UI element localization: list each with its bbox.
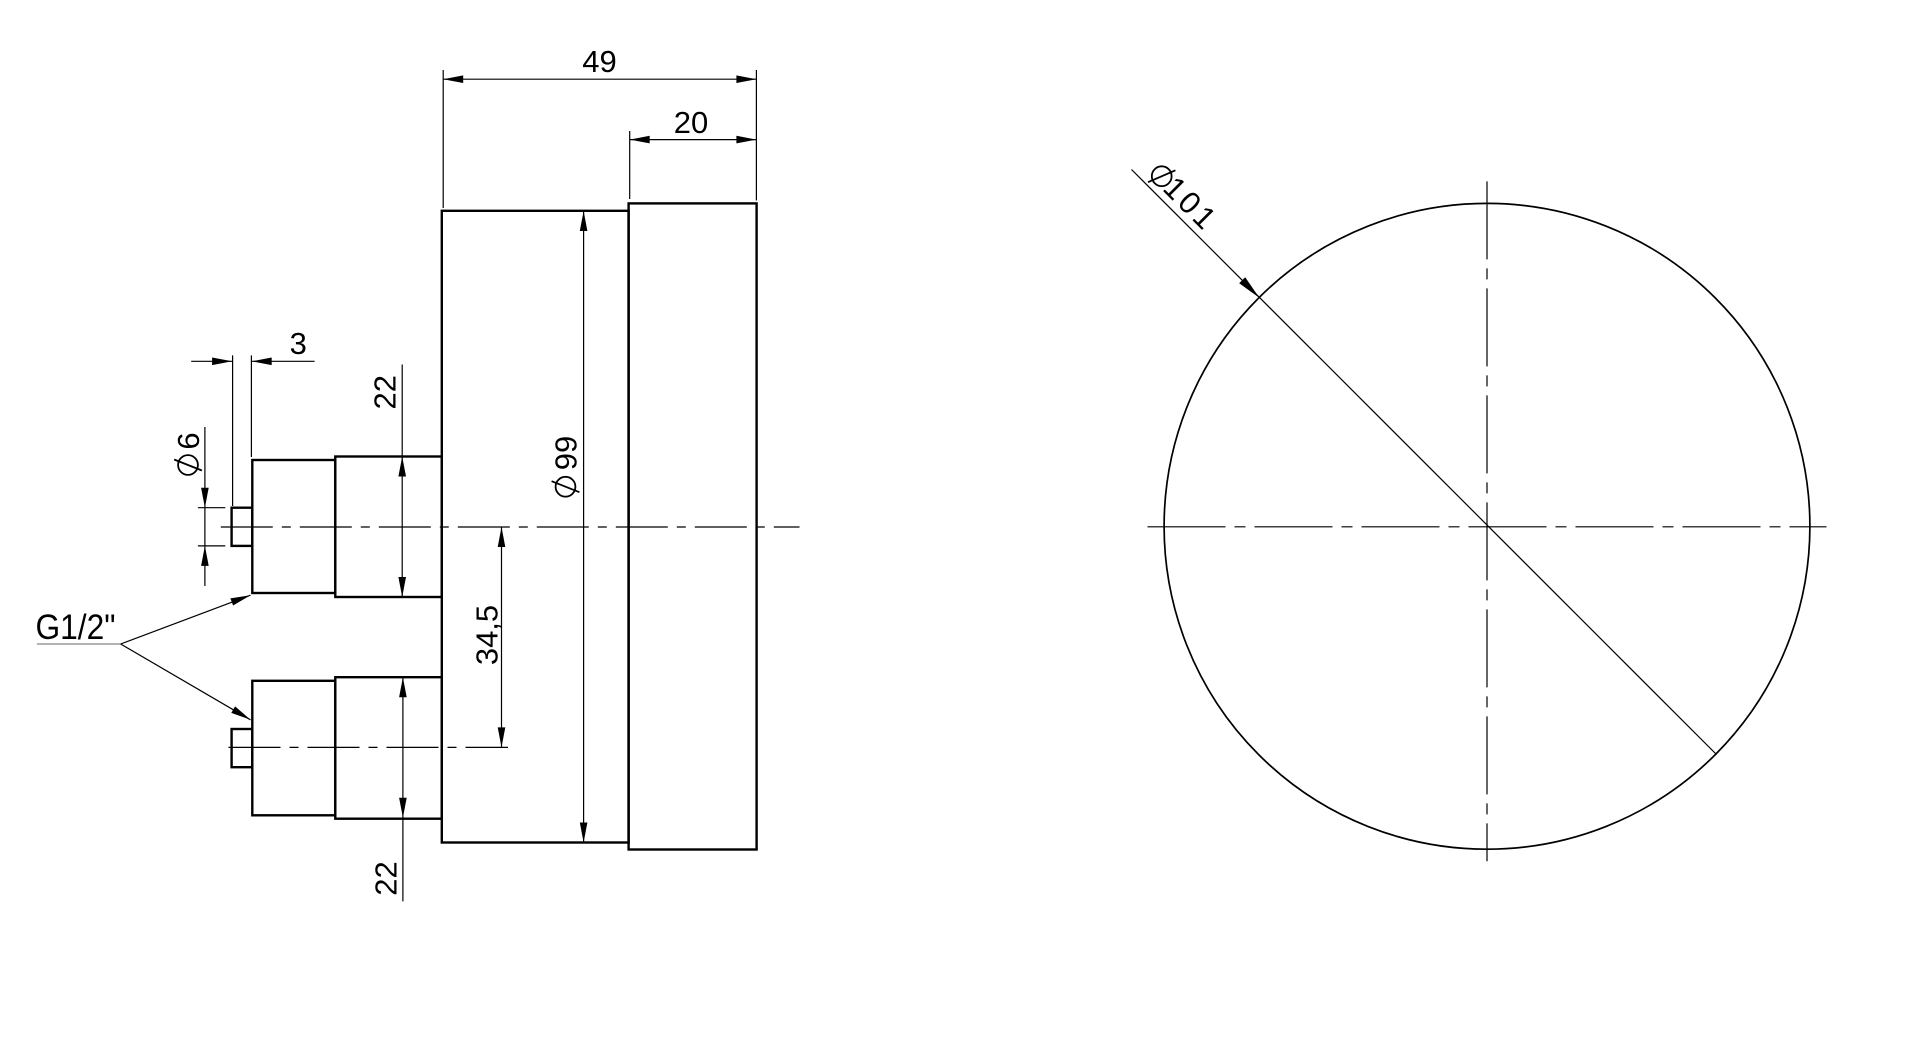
svg-text:3: 3 bbox=[290, 326, 307, 361]
svg-text:99: 99 bbox=[548, 436, 583, 470]
svg-text:6: 6 bbox=[171, 432, 206, 449]
svg-text:G1/2": G1/2" bbox=[36, 608, 116, 647]
svg-text:22: 22 bbox=[368, 861, 403, 895]
svg-text:34,5: 34,5 bbox=[469, 605, 504, 665]
svg-text:49: 49 bbox=[582, 44, 616, 79]
svg-text:22: 22 bbox=[368, 375, 403, 409]
svg-text:20: 20 bbox=[674, 105, 708, 140]
